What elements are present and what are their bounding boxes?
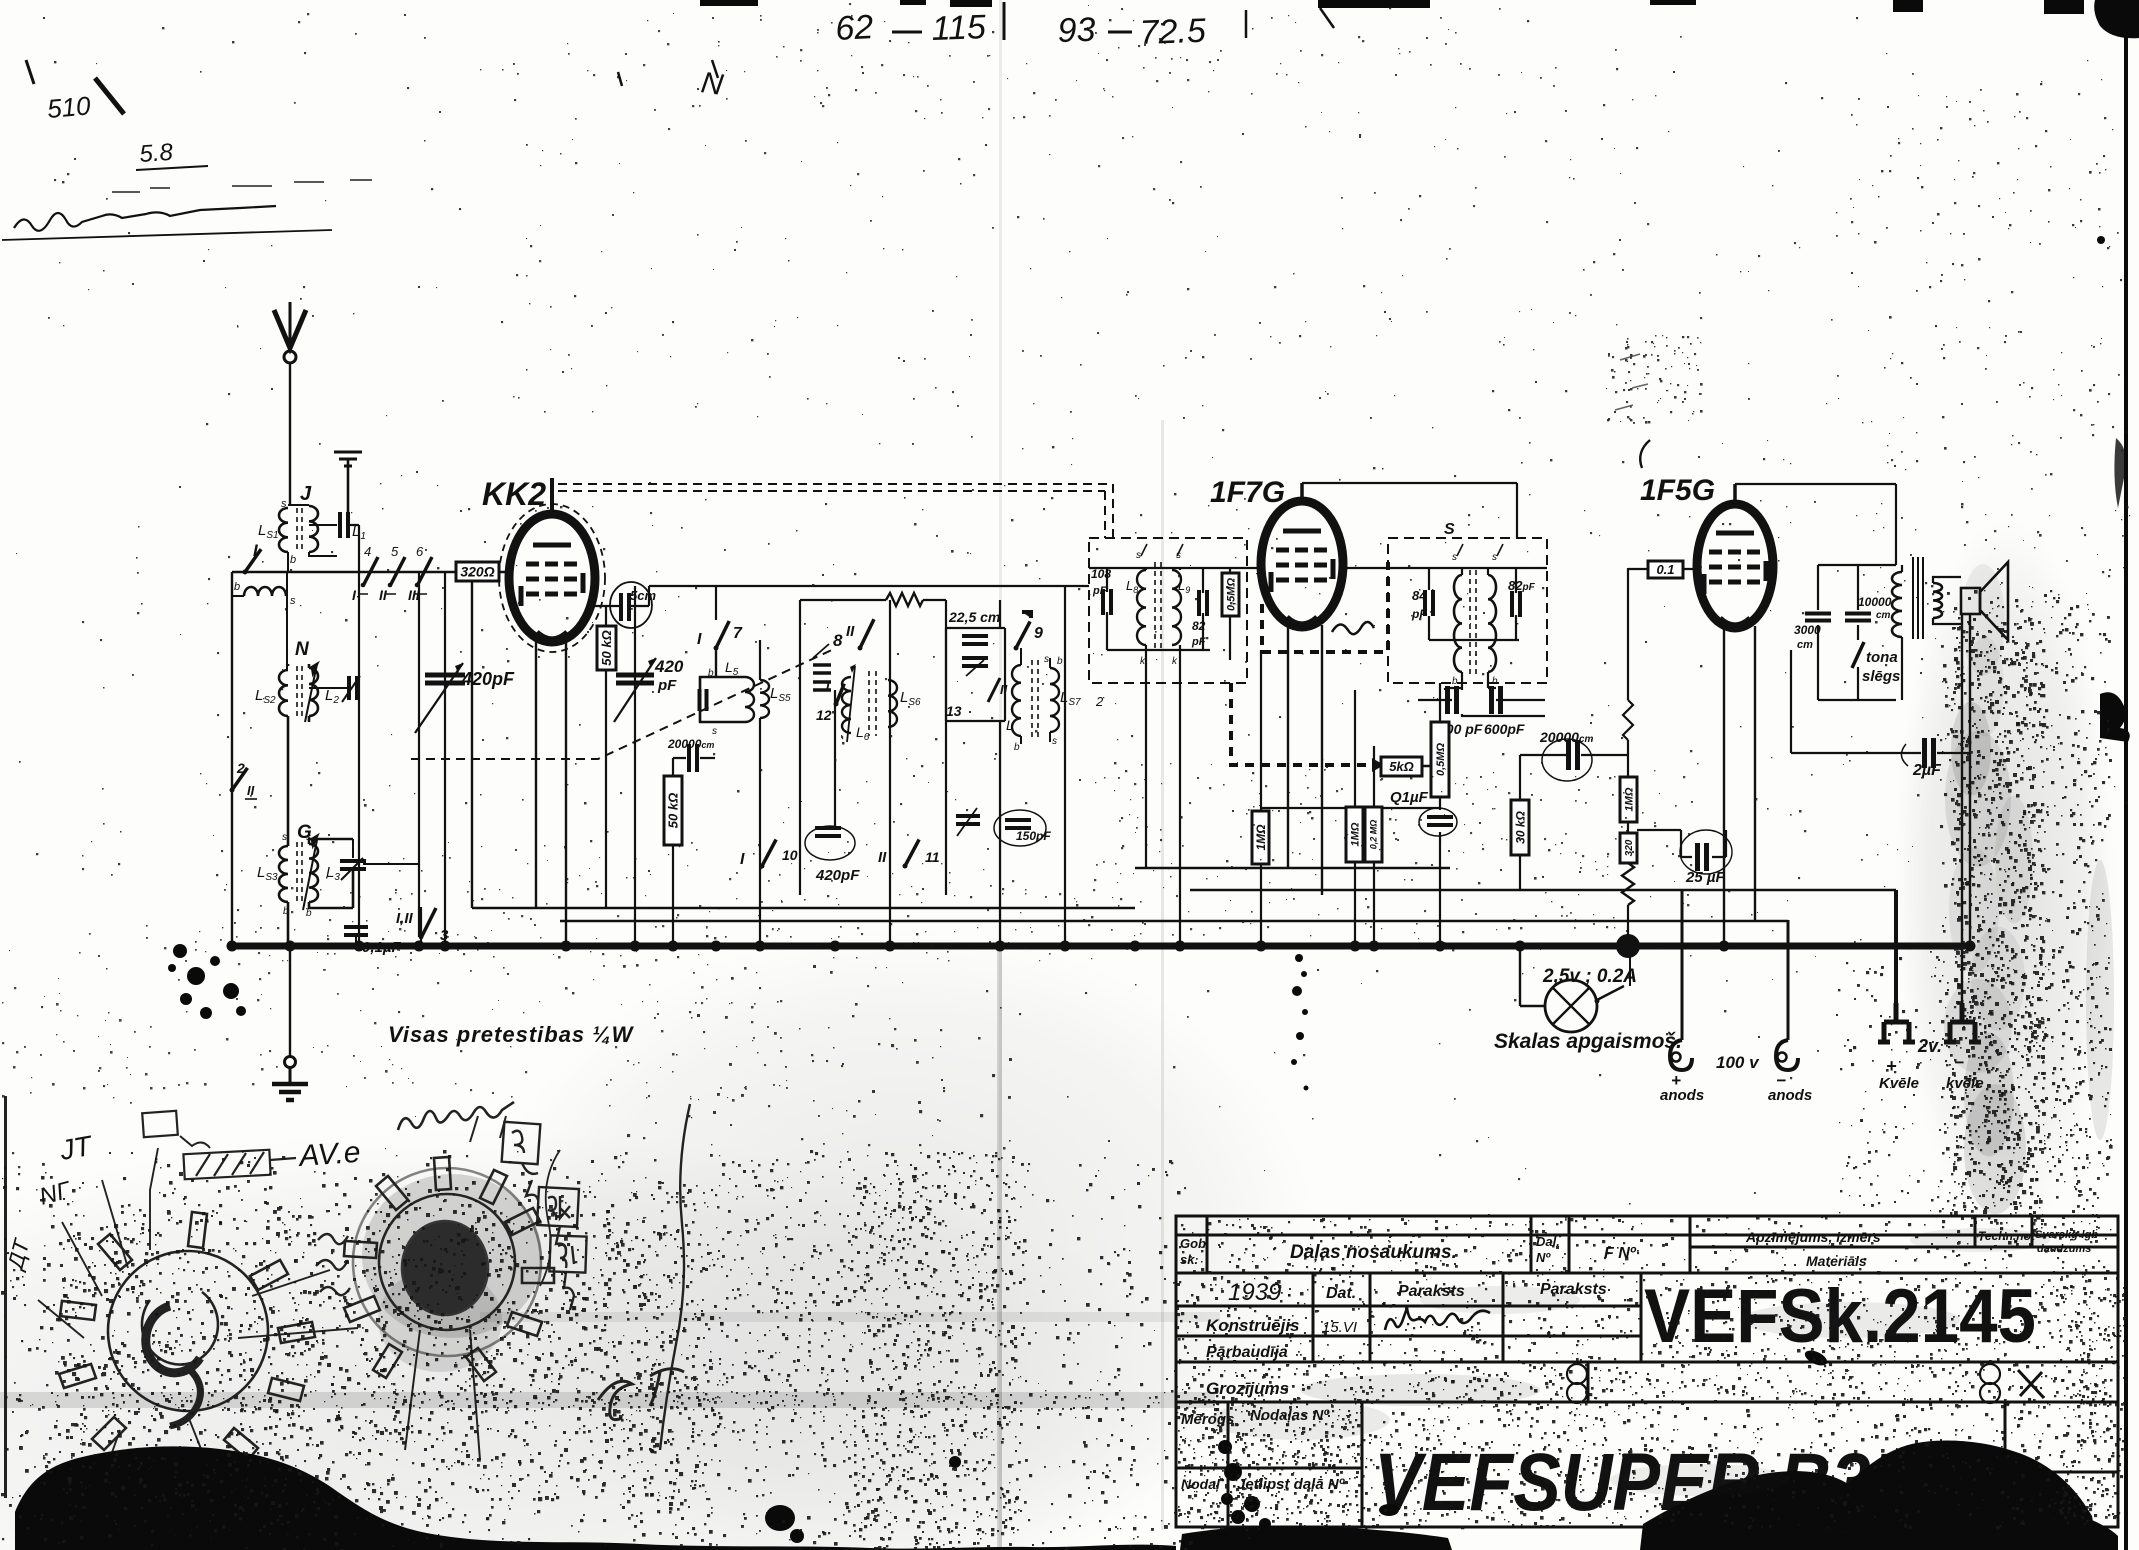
svg-text:510: 510	[46, 90, 92, 124]
svg-text:9: 9	[1034, 625, 1043, 642]
svg-text:b: b	[1057, 656, 1063, 667]
svg-text:15.VI: 15.VI	[1322, 1319, 1357, 1336]
svg-text:cm: cm	[1876, 610, 1891, 621]
svg-text:II: II	[1000, 682, 1008, 697]
svg-text:10000: 10000	[1858, 595, 1892, 609]
svg-text:b: b	[708, 668, 714, 679]
svg-text:sk.: sk.	[1180, 1252, 1198, 1267]
svg-text:tona: tona	[1866, 649, 1898, 666]
svg-text:1F5G: 1F5G	[1640, 474, 1715, 507]
svg-text:N: N	[295, 639, 310, 660]
svg-text:pF: pF	[1092, 585, 1107, 597]
svg-text:13: 13	[946, 703, 962, 719]
svg-text:S: S	[1444, 521, 1455, 538]
svg-text:1MΩ: 1MΩ	[1623, 787, 1635, 811]
svg-text:0.1: 0.1	[1656, 562, 1674, 577]
svg-text:s: s	[1136, 550, 1141, 561]
svg-text:11: 11	[925, 849, 940, 865]
svg-text:cm: cm	[1797, 639, 1813, 651]
svg-text:J: J	[300, 483, 312, 505]
svg-text:s: s	[306, 832, 311, 843]
svg-text:Q1µF: Q1µF	[1390, 789, 1429, 806]
svg-text:1939: 1939	[1228, 1279, 1281, 1306]
svg-text:115: 115	[931, 8, 987, 48]
svg-text:s: s	[1044, 654, 1049, 665]
svg-text:93: 93	[1057, 11, 1096, 50]
svg-text:s: s	[282, 832, 287, 843]
svg-text:420pF: 420pF	[815, 867, 860, 884]
svg-text:s: s	[1052, 736, 1057, 747]
svg-text:AV.e: AV.e	[296, 1136, 361, 1173]
svg-text:b: b	[234, 581, 240, 593]
svg-text:b: b	[283, 906, 289, 917]
svg-text:0,5MΩ: 0,5MΩ	[1435, 743, 1447, 776]
svg-text:KK2: KK2	[482, 476, 546, 512]
svg-text:b: b	[306, 908, 312, 919]
svg-text:5.8: 5.8	[139, 139, 175, 168]
svg-text:62: 62	[834, 8, 874, 48]
svg-text:daudzums: daudzums	[2037, 1243, 2091, 1255]
svg-text:1MΩ: 1MΩ	[1254, 824, 1268, 851]
svg-text:I: I	[740, 851, 745, 868]
svg-text:Konstruējis: Konstruējis	[1206, 1316, 1300, 1335]
svg-text:8: 8	[833, 631, 843, 650]
svg-text:4: 4	[364, 544, 371, 559]
svg-text:b: b	[1452, 676, 1458, 687]
svg-text:pF: pF	[1191, 636, 1206, 648]
svg-text:s: s	[281, 498, 287, 510]
svg-text:1F7G: 1F7G	[1210, 476, 1285, 509]
svg-text:2: 2	[236, 760, 245, 776]
svg-text:I,II: I,II	[396, 910, 414, 927]
svg-text:anods: anods	[1660, 1087, 1704, 1104]
svg-text:3000: 3000	[1794, 623, 1821, 637]
svg-text:5kΩ: 5kΩ	[1389, 759, 1414, 774]
svg-text:72.5: 72.5	[1139, 12, 1207, 52]
svg-text:I: I	[697, 631, 702, 648]
svg-text:2,5v ; 0.2A: 2,5v ; 0.2A	[1542, 966, 1637, 987]
svg-text:25 µF: 25 µF	[1685, 869, 1725, 886]
svg-text:420: 420	[654, 657, 684, 676]
svg-text:Jetlipst daļā Nº: Jetlipst daļā Nº	[1237, 1476, 1346, 1493]
svg-text:0,5MΩ: 0,5MΩ	[1225, 578, 1237, 611]
svg-text:2: 2	[1095, 694, 1104, 709]
svg-text:320: 320	[1624, 839, 1635, 856]
svg-text:Kvēle: Kvēle	[1879, 1075, 1919, 1092]
svg-text:Dat.: Dat.	[1326, 1285, 1356, 1302]
svg-text:Skalas apgaismoš.: Skalas apgaismoš.	[1494, 1030, 1682, 1053]
svg-text:100 v: 100 v	[1716, 1053, 1760, 1072]
svg-text:320Ω: 320Ω	[460, 564, 494, 580]
svg-text:420pF: 420pF	[461, 669, 515, 689]
svg-text:10: 10	[782, 847, 798, 863]
svg-text:L: L	[1006, 717, 1014, 733]
svg-text:2v.: 2v.	[1917, 1036, 1942, 1056]
svg-text:22,5 cm: 22,5 cm	[948, 609, 1000, 625]
svg-text:20000cm: 20000cm	[667, 737, 714, 751]
svg-text:s: s	[712, 726, 717, 737]
svg-text:II: II	[846, 623, 855, 640]
svg-text:b: b	[290, 554, 296, 566]
svg-text:50 kΩ: 50 kΩ	[599, 630, 614, 665]
svg-text:50 kΩ: 50 kΩ	[666, 793, 681, 828]
svg-text:slēgs: slēgs	[1862, 668, 1900, 685]
svg-text:1MΩ: 1MΩ	[1349, 822, 1361, 846]
svg-text:5: 5	[391, 544, 399, 559]
svg-text:108: 108	[1091, 567, 1111, 581]
svg-text:7: 7	[733, 625, 743, 642]
svg-text:6: 6	[416, 544, 424, 559]
svg-text:0,2 MΩ: 0,2 MΩ	[1369, 820, 1379, 850]
svg-text:600pF: 600pF	[1484, 721, 1525, 737]
svg-text:s: s	[1492, 552, 1497, 563]
svg-text:I: I	[826, 678, 830, 693]
svg-text:150pF: 150pF	[1016, 829, 1051, 843]
svg-text:II: II	[878, 849, 887, 866]
svg-text:Visas pretestibas ¼W: Visas pretestibas ¼W	[388, 1022, 635, 1047]
svg-text:2µF: 2µF	[1912, 762, 1942, 779]
svg-text:s: s	[1452, 552, 1457, 563]
svg-text:pF: pF	[657, 677, 677, 694]
svg-text:12: 12	[816, 707, 832, 723]
svg-text:Apzīmējums, izmērs: Apzīmējums, izmērs	[1745, 1229, 1881, 1245]
svg-text:b: b	[1492, 676, 1498, 687]
svg-text:II: II	[379, 587, 388, 603]
svg-text:b: b	[1014, 742, 1020, 753]
svg-text:30 kΩ: 30 kΩ	[1513, 811, 1527, 844]
svg-text:Gob.: Gob.	[1180, 1236, 1210, 1251]
svg-text:s: s	[290, 595, 296, 607]
svg-text:anods: anods	[1768, 1087, 1812, 1104]
svg-text:82: 82	[1192, 619, 1206, 633]
